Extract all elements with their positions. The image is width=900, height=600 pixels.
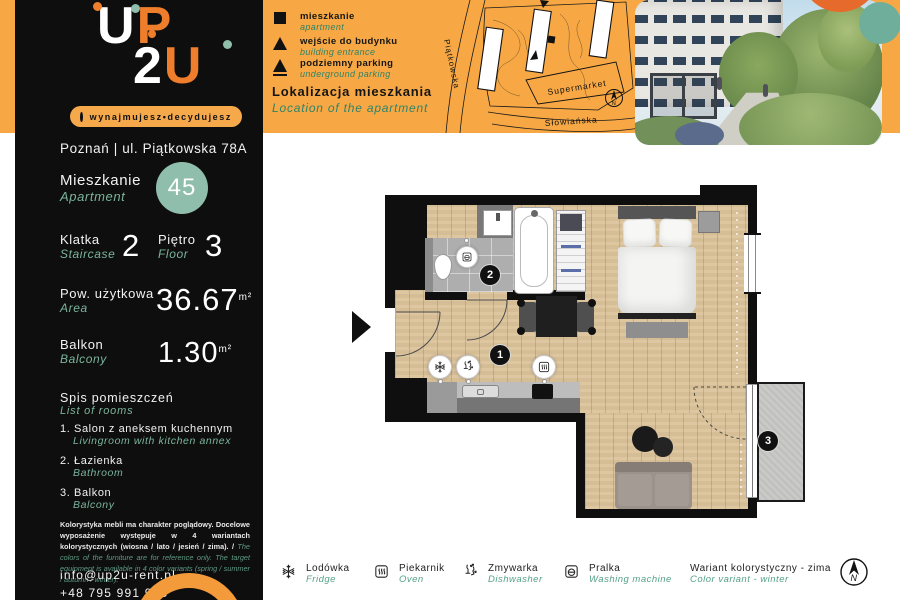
up2u-logo: UP 2U (85, 2, 245, 107)
photo-person (763, 84, 768, 97)
logo-dot-orange (93, 2, 102, 11)
map-building-3 (589, 0, 614, 58)
nightstand (698, 211, 720, 233)
decorative-circle-teal (859, 2, 900, 44)
balcony-value: 1.30m² (158, 337, 232, 370)
color-variant-pl: Wariant kolorystyczny - zima (690, 563, 831, 574)
map-street-slowianska: Słowiańska (544, 114, 598, 128)
table (536, 296, 577, 337)
fridge-snowflake-icon (280, 563, 297, 580)
map-building-1 (478, 27, 503, 91)
bathtub (514, 207, 554, 294)
floor-value: 3 (205, 228, 222, 264)
photo-lavender (675, 122, 724, 145)
location-title-en: Location of the apartment (272, 101, 428, 115)
map-building-2 (526, 9, 551, 73)
location-title-pl: Lokalizacja mieszkania (272, 84, 432, 99)
legend-entrance: wejście do budynku building entrance (272, 36, 397, 57)
kitchen-sink (462, 385, 499, 398)
site-map: Supermarket Piątkowska Słowiańska N (430, 0, 640, 133)
apartment-label-en: Apartment (60, 189, 141, 204)
staircase-label-pl: Klatka (60, 232, 115, 247)
bathroom-sink (483, 210, 512, 236)
floor-label-en: Floor (158, 247, 196, 261)
area-value: 36.67m² (156, 282, 252, 318)
pillow (623, 218, 657, 247)
room-list-item: 2. Łazienka Bathroom (60, 455, 123, 479)
area-label-pl: Pow. użytkowa (60, 286, 154, 301)
legend-entrance-en: building entrance (300, 47, 397, 57)
room-list-item: 1. Salon z aneksem kuchennym Livingroom … (60, 423, 233, 447)
oven-icon (373, 563, 390, 580)
apartment-number-badge: 45 (156, 162, 208, 214)
legend-apartment: mieszkanie apartment (272, 11, 355, 32)
footer-oven: PiekarnikOven (373, 563, 445, 585)
svg-text:N: N (851, 573, 858, 583)
washing-machine-icon (563, 563, 580, 580)
dishwasher-icon (462, 563, 479, 580)
legend-parking-en: underground parking (300, 69, 393, 79)
fridge-snowflake-icon (428, 355, 452, 379)
bed-bench (626, 322, 688, 338)
legend-apartment-en: apartment (300, 22, 355, 32)
cooktop (532, 384, 553, 399)
room-list-item: 3. Balkon Balcony (60, 487, 115, 511)
sofa (615, 462, 692, 509)
svg-text:N: N (612, 101, 616, 107)
room-marker-living: 1 (489, 344, 511, 366)
entrance-arrow-icon (273, 37, 287, 50)
photo-pergola (650, 73, 717, 119)
sidebar: UP 2U wynajmujesz•decydujesz Poznań | ul… (15, 0, 263, 600)
tagline-pill: wynajmujesz•decydujesz (70, 106, 242, 127)
map-apartment-marker (547, 36, 555, 44)
legend-parking: podziemny parking underground parking (272, 58, 393, 79)
photo-person (717, 77, 722, 90)
kitchen-counter (427, 382, 580, 413)
bed-frame (618, 313, 696, 319)
map-street-piatkowska: Piątkowska (442, 39, 461, 90)
legend-parking-pl: podziemny parking (300, 58, 393, 69)
bed-duvet (618, 247, 696, 314)
oven-icon (532, 355, 556, 379)
floor-label-pl: Piętro (158, 232, 196, 247)
footer-fridge: LodówkaFridge (280, 563, 350, 585)
balcony-label-en: Balcony (60, 352, 107, 366)
area-label-en: Area (60, 301, 154, 315)
logo-dot-orange (148, 30, 156, 38)
apartment-label-pl: Mieszkanie (60, 172, 141, 189)
bed-headboard (618, 206, 696, 219)
parking-arrow-icon (273, 59, 287, 72)
room-marker-bathroom: 2 (479, 264, 501, 286)
dishwasher-icon (456, 355, 480, 379)
wardrobe (556, 210, 586, 292)
color-variant-en: Color variant - winter (690, 574, 831, 585)
map-compass-icon: N (606, 90, 623, 108)
legend-apartment-pl: mieszkanie (300, 11, 355, 22)
legend-entrance-pl: wejście do budynku (300, 36, 397, 47)
staircase-label-en: Staircase (60, 247, 115, 261)
footer-dishwasher: ZmywarkaDishwasher (462, 563, 543, 585)
balcony-label-pl: Balkon (60, 337, 107, 352)
tagline: wynajmujesz•decydujesz (90, 112, 232, 122)
washing-machine-icon (456, 246, 478, 268)
pillow (659, 218, 693, 247)
apartment-flyer: mieszkanie apartment wejście do budynku … (0, 0, 900, 600)
pill-dot-icon (80, 112, 83, 122)
coffee-table (653, 437, 673, 457)
apartment-square-icon (274, 12, 286, 24)
bedroom-window (744, 233, 761, 294)
logo-dot-teal (223, 40, 232, 49)
logo-dot-teal (131, 4, 140, 13)
entrance-arrow-icon (352, 311, 371, 343)
rooms-header-pl: Spis pomieszczeń (60, 391, 174, 405)
footer-washing-machine: PralkaWashing machine (563, 563, 672, 585)
compass-icon: N (838, 556, 870, 588)
rooms-header-en: List of rooms (60, 405, 174, 417)
room-marker-balcony: 3 (757, 430, 779, 452)
building-photo (635, 0, 882, 145)
address: Poznań | ul. Piątkowska 78A (60, 141, 247, 156)
map-entrance-marker-top (540, 0, 549, 8)
staircase-value: 2 (122, 228, 139, 264)
map-supermarket-label: Supermarket (547, 78, 608, 97)
